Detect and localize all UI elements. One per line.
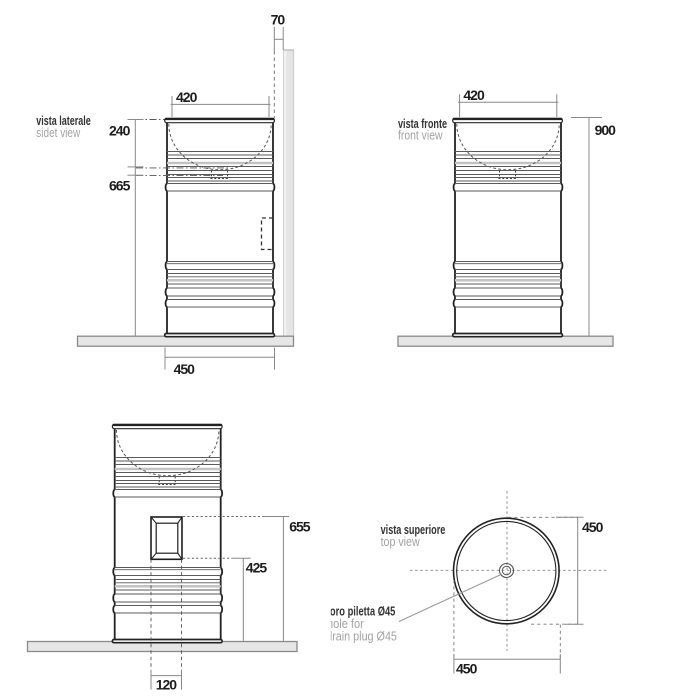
svg-text:front view: front view	[398, 128, 443, 142]
svg-text:drain plug Ø45: drain plug Ø45	[326, 628, 397, 643]
svg-text:665: 665	[109, 178, 131, 194]
svg-text:70: 70	[271, 12, 286, 28]
svg-text:top view: top view	[381, 534, 420, 549]
svg-text:655: 655	[289, 518, 311, 534]
svg-text:425: 425	[246, 560, 268, 576]
svg-text:450: 450	[174, 361, 196, 377]
svg-text:420: 420	[463, 87, 485, 103]
svg-text:120: 120	[156, 676, 178, 692]
svg-text:900: 900	[595, 122, 617, 138]
svg-text:sidet view: sidet view	[36, 126, 80, 141]
svg-text:450: 450	[456, 661, 478, 677]
svg-text:450: 450	[582, 519, 604, 535]
svg-text:240: 240	[109, 122, 131, 138]
svg-text:420: 420	[176, 89, 198, 105]
